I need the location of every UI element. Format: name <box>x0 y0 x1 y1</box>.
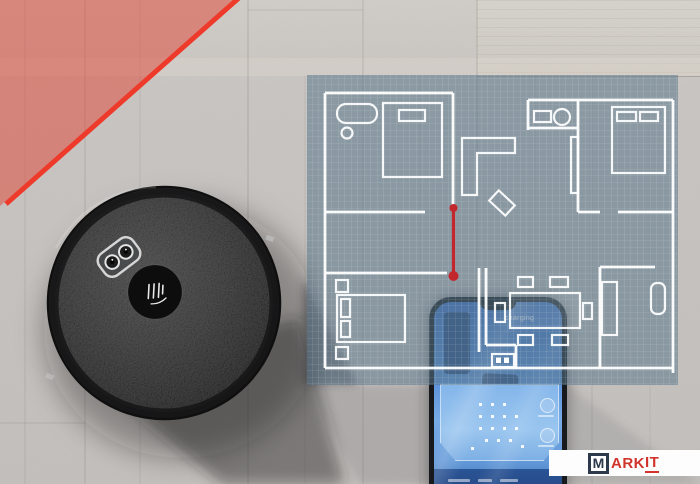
screen-reflection <box>434 302 562 484</box>
vacuum-rim-notch-right <box>265 235 274 242</box>
smartphone: charging <box>429 297 567 484</box>
watermark-text: ARK <box>611 455 645 472</box>
vacuum-rim-notch-left <box>45 373 54 380</box>
watermark-logo-m: M <box>588 453 609 474</box>
watermark-text-underlined: IT <box>645 454 659 473</box>
phone-screen: charging <box>434 302 562 484</box>
robot-vacuum <box>0 0 700 484</box>
phone-notch <box>480 297 516 310</box>
watermark: M ARK IT <box>549 450 700 476</box>
product-scene: charging <box>0 0 700 484</box>
